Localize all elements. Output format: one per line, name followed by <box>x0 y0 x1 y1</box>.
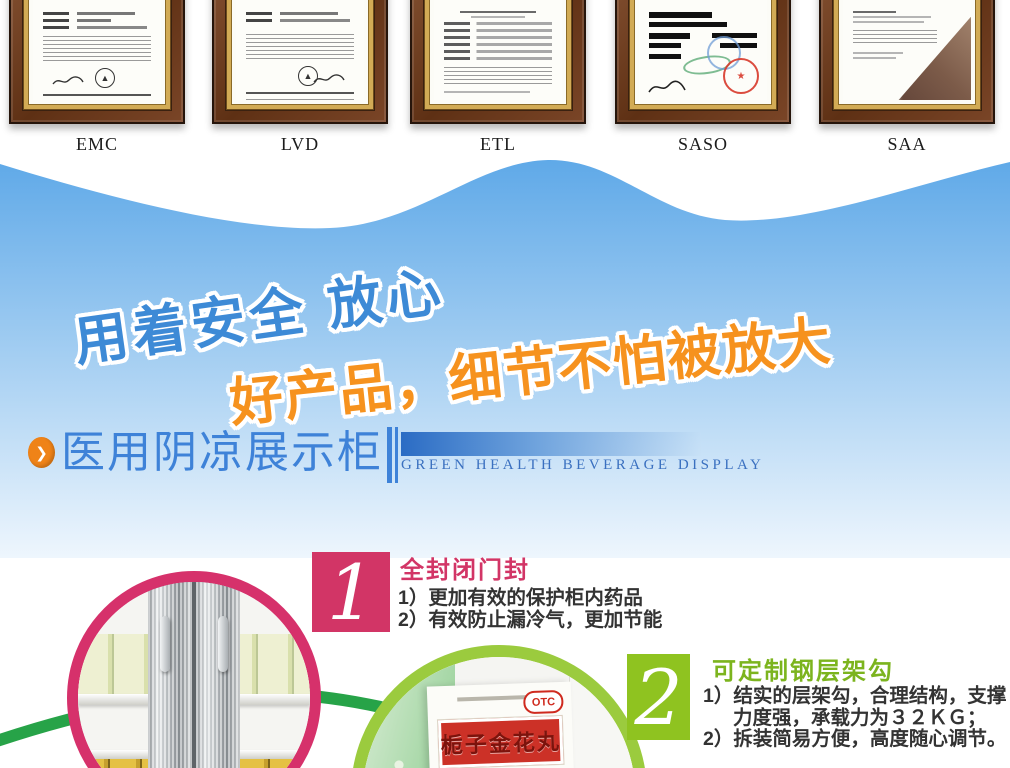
certificate-label: SAA <box>819 134 995 155</box>
signature-icon <box>647 80 687 96</box>
signature-icon <box>312 72 346 86</box>
redaction-bar <box>649 54 681 59</box>
certificate-frame <box>410 0 586 124</box>
otc-badge: OTC <box>523 690 564 714</box>
certificate-paper: ★ <box>639 0 767 100</box>
certificate-emc: ▲ EMC <box>9 0 185 160</box>
frame-gold-trim: ★ <box>630 0 776 109</box>
redaction-bar <box>649 33 690 39</box>
frame-gold-trim <box>425 0 571 109</box>
section-subtitle: GREEN HEALTH BEVERAGE DISPLAY <box>401 457 764 474</box>
medicine-box-front: OTC 栀子金花丸 ZHIZI JINHUA WAN <box>427 682 580 768</box>
certificate-frame: ▲ <box>212 0 388 124</box>
fridge-doors-photo <box>78 582 310 768</box>
signature-icon <box>51 74 85 88</box>
door-handle-right <box>218 616 228 672</box>
feature-1-title: 全封闭门封 <box>400 550 530 585</box>
certificate-saa: SAA <box>819 0 995 160</box>
feature-2-line-2: 力度强，承载力为３２ＫＧ； <box>703 708 1006 730</box>
divider-bars <box>387 427 398 483</box>
feature-2-title: 可定制钢层架勾 <box>712 651 894 686</box>
door-seal-photo-circle <box>67 571 321 768</box>
feature-2-line-3: 2）拆装简易方便，高度随心调节。 <box>703 729 1006 751</box>
frame-gold-trim <box>834 0 980 109</box>
feature-2-description: 1）结实的层架勾，合理结构，支撑 力度强，承载力为３２ＫＧ； 2）拆装简易方便，… <box>703 686 1006 751</box>
folded-page-corner <box>898 15 971 100</box>
certificate-lvd: ▲ LVD <box>212 0 388 160</box>
cabinet-door-edge: ◆ <box>569 668 635 768</box>
redaction-bar <box>649 12 712 18</box>
certificate-label: LVD <box>212 134 388 155</box>
product-detail-page: ▲ EMC ▲ <box>0 0 1010 768</box>
certificate-frame: ▲ <box>9 0 185 124</box>
redaction-bar <box>649 43 681 48</box>
certificate-saso: ★ SASO <box>615 0 791 160</box>
feature-2-line-1: 1）结实的层架勾，合理结构，支撑 <box>703 686 1006 708</box>
tuv-logo-icon: ▲ <box>95 68 115 88</box>
red-round-stamp: ★ <box>723 58 759 94</box>
redaction-bar <box>649 22 727 27</box>
certificate-frame: ★ <box>615 0 791 124</box>
door-frames <box>148 582 240 768</box>
certificate-paper <box>843 0 971 100</box>
section-title: 医用阴凉展示柜 <box>61 424 383 482</box>
gradient-bar <box>401 432 701 456</box>
frame-gold-trim: ▲ <box>227 0 373 109</box>
medicine-name-cn: 栀子金花丸 <box>438 716 564 768</box>
arrow-bullet-icon: ❯ <box>28 437 55 468</box>
certificate-paper <box>434 0 562 100</box>
certificate-label: EMC <box>9 134 185 155</box>
feature-2-number: 2 <box>627 654 690 740</box>
certificate-label: ETL <box>410 134 586 155</box>
certificate-etl: ETL <box>410 0 586 160</box>
frame-gold-trim: ▲ <box>24 0 170 109</box>
door-handle-left <box>160 616 170 672</box>
feature-1-description: 1）更加有效的保护柜内药品 2）有效防止漏冷气，更加节能 <box>398 587 662 631</box>
certificate-paper: ▲ <box>236 0 364 100</box>
feature-1-number: 1 <box>312 552 390 632</box>
medicine-box-photo: ◆ OTC 栀子金花丸 ZHIZI JINHUA WAN <box>363 657 635 768</box>
certificate-frame <box>819 0 995 124</box>
feature-1-line-2: 2）有效防止漏冷气，更加节能 <box>398 609 662 631</box>
certificate-paper: ▲ <box>33 0 161 100</box>
section-header: ❯ 医用阴凉展示柜 GREEN HEALTH BEVERAGE DISPLAY <box>28 424 764 483</box>
feature-1-line-1: 1）更加有效的保护柜内药品 <box>398 587 662 609</box>
certificate-label: SASO <box>615 134 791 155</box>
